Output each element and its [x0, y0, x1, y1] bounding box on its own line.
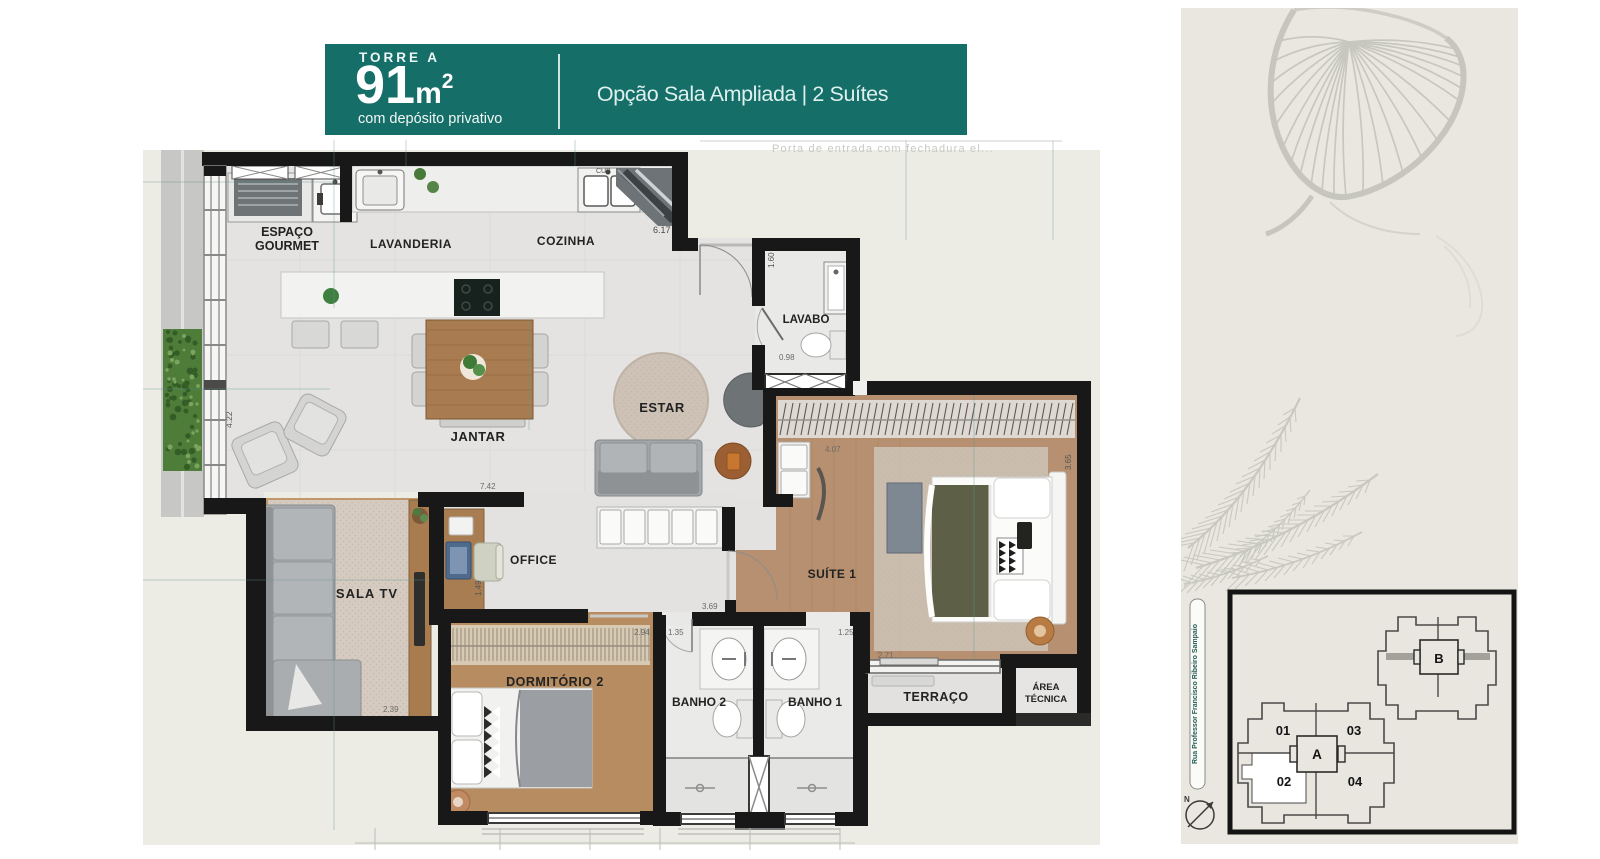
svg-text:COZINHA: COZINHA: [537, 234, 595, 248]
svg-text:1.25: 1.25: [838, 628, 854, 637]
svg-text:Porta de entrada com fechadura: Porta de entrada com fechadura el...: [772, 143, 994, 155]
svg-text:BANHO 1: BANHO 1: [788, 695, 842, 709]
svg-text:1.49: 1.49: [474, 580, 483, 596]
svg-text:2.94: 2.94: [634, 628, 650, 637]
svg-text:SALA TV: SALA TV: [336, 586, 398, 601]
svg-text:JANTAR: JANTAR: [451, 429, 506, 444]
svg-text:6.17: 6.17: [653, 225, 671, 235]
svg-text:GOURMET: GOURMET: [255, 239, 319, 253]
svg-text:7.42: 7.42: [480, 482, 496, 491]
svg-text:ÁREA: ÁREA: [1033, 682, 1060, 693]
svg-text:03: 03: [1347, 723, 1361, 738]
svg-text:04: 04: [1348, 774, 1363, 789]
svg-text:OFFICE: OFFICE: [510, 553, 557, 567]
svg-text:B: B: [1434, 651, 1443, 666]
svg-text:DORMITÓRIO 2: DORMITÓRIO 2: [506, 674, 604, 689]
svg-text:ESTAR: ESTAR: [639, 400, 685, 415]
svg-text:Rua Professor Francisco Ribeir: Rua Professor Francisco Ribeiro Sampaio: [1192, 624, 1199, 764]
svg-text:1.35: 1.35: [668, 628, 684, 637]
svg-text:01: 01: [1276, 723, 1290, 738]
svg-text:TÉCNICA: TÉCNICA: [1025, 694, 1067, 705]
svg-text:2.39: 2.39: [383, 705, 399, 714]
svg-text:TERRAÇO: TERRAÇO: [903, 690, 968, 704]
svg-text:1.60: 1.60: [767, 252, 776, 268]
svg-text:02: 02: [1277, 774, 1291, 789]
svg-text:ESPAÇO: ESPAÇO: [261, 225, 313, 239]
svg-text:A: A: [1312, 747, 1322, 762]
svg-text:CUB: CUB: [596, 168, 611, 175]
svg-text:LAVANDERIA: LAVANDERIA: [370, 237, 452, 251]
svg-text:LAVABO: LAVABO: [783, 314, 830, 326]
svg-text:SUÍTE 1: SUÍTE 1: [808, 566, 857, 581]
svg-text:4.07: 4.07: [825, 445, 841, 454]
svg-text:3.65: 3.65: [1064, 454, 1073, 470]
svg-text:0.98: 0.98: [779, 353, 795, 362]
svg-text:BANHO 2: BANHO 2: [672, 695, 726, 709]
svg-text:N: N: [1184, 795, 1190, 804]
svg-text:3.69: 3.69: [702, 602, 718, 611]
